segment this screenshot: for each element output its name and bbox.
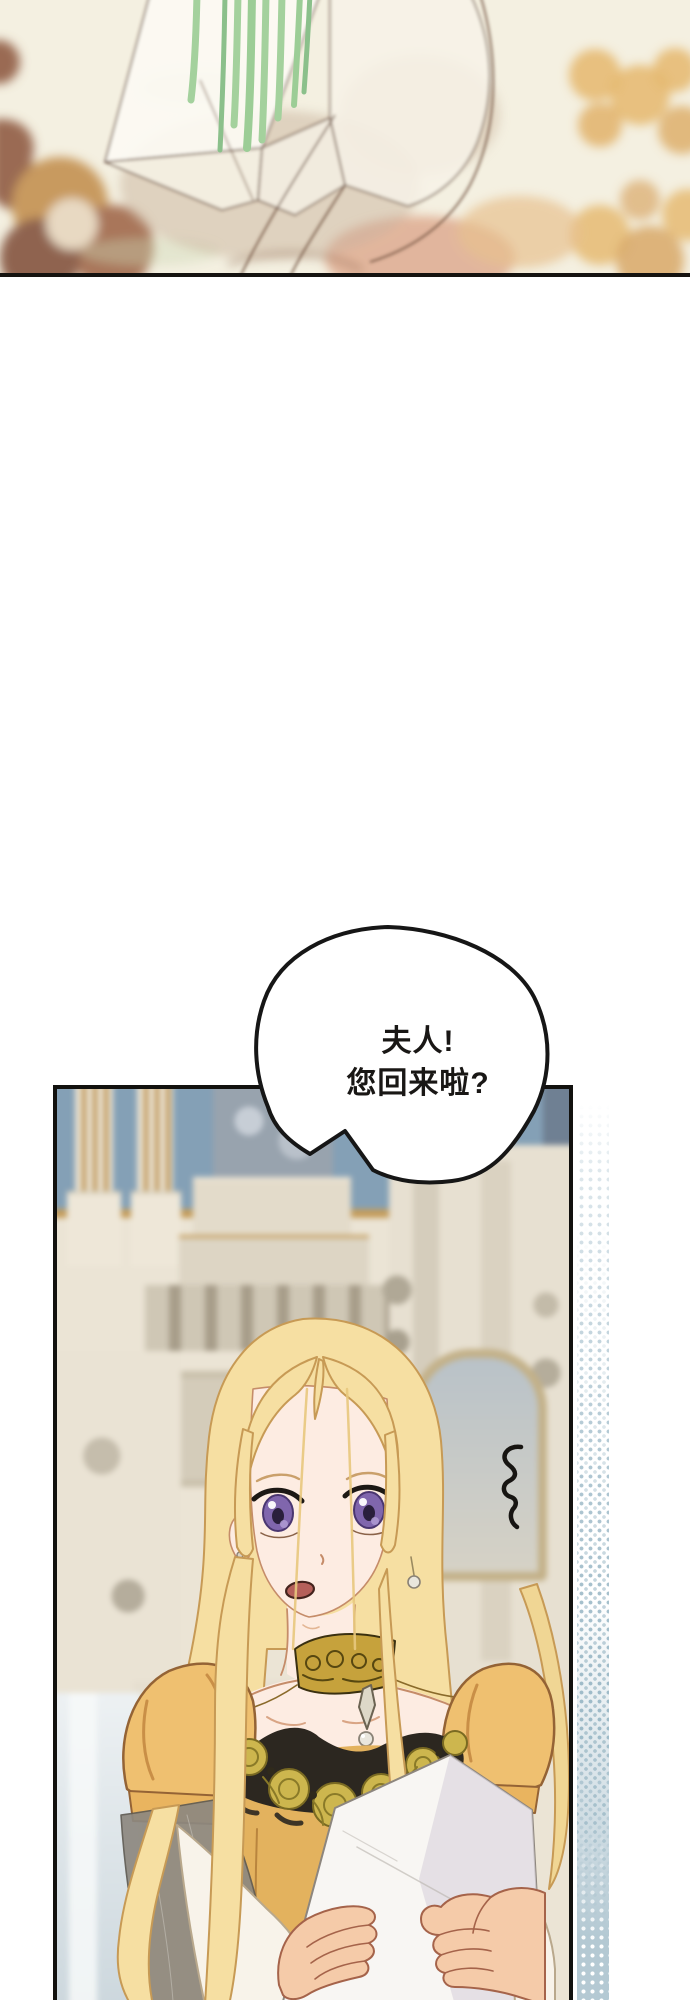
surprise-squiggle-mark [504,1447,521,1527]
halftone-dots-strip [577,1103,609,2000]
lady-figure [57,1089,569,2000]
speech-bubble-text: 夫人! 您回来啦? [302,1021,534,1105]
bottom-panel [53,1085,573,2000]
pearl-earring [408,1576,420,1588]
speech-line-2: 您回来啦? [302,1063,534,1105]
speech-line-1: 夫人! [302,1021,534,1063]
halftone-dots-inverse [577,1103,609,2000]
webtoon-page: 夫人! 您回来啦? [0,0,690,2000]
pendant-pearl [359,1732,373,1746]
top-panel-bottom-border [0,273,690,277]
top-panel [0,0,690,277]
bouquet-illustration [0,0,690,277]
